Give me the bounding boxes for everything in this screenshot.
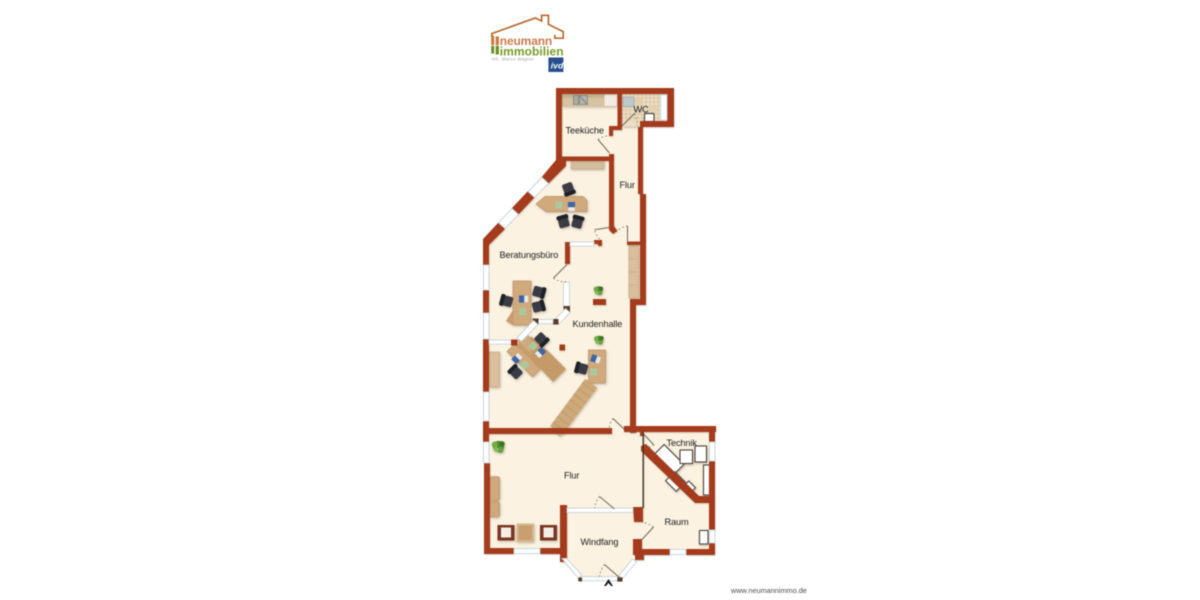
svg-text:Kundenhalle: Kundenhalle — [573, 319, 623, 329]
svg-text:Raum: Raum — [665, 517, 689, 527]
svg-text:ivd: ivd — [551, 60, 564, 70]
svg-text:www.neumannimmo.de: www.neumannimmo.de — [730, 586, 807, 595]
svg-text:Flur: Flur — [620, 180, 635, 190]
svg-text:WC: WC — [634, 105, 650, 115]
svg-text:Inh. Marco Wagner: Inh. Marco Wagner — [492, 57, 535, 62]
svg-text:Beratungsbüro: Beratungsbüro — [500, 250, 559, 260]
svg-text:Windfang: Windfang — [581, 537, 619, 547]
svg-text:Teeküche: Teeküche — [566, 126, 604, 136]
svg-text:Technik: Technik — [667, 438, 698, 448]
svg-text:Flur: Flur — [564, 471, 579, 481]
